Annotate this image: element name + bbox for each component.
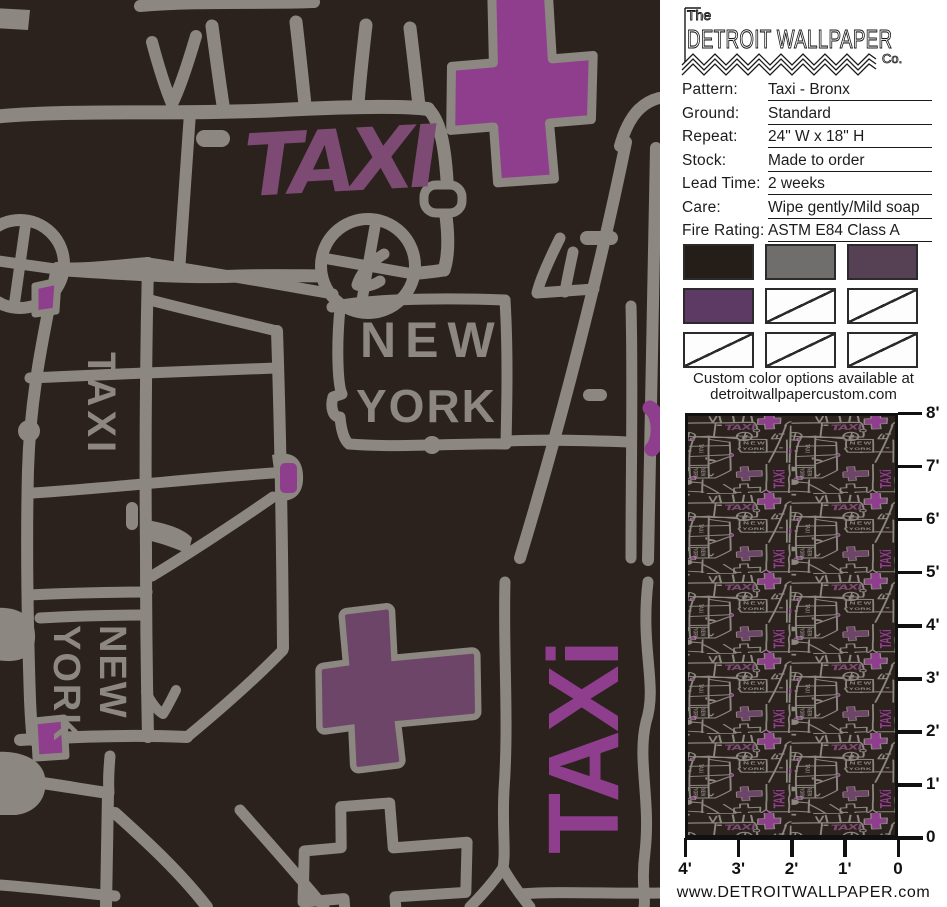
spec-row-fire-rating: Fire Rating: ASTM E84 Class A xyxy=(682,222,932,246)
wallpaper-pattern-preview: TAXI xyxy=(0,0,660,907)
ruler-label: 4' xyxy=(926,615,940,635)
vertical-ruler: 8' 7' 6' 5' 4' 3' 2' 1' 0 xyxy=(898,413,947,838)
spec-value: Standard xyxy=(768,105,932,125)
spec-label: Pattern: xyxy=(682,81,768,99)
ruler-label: 0 xyxy=(893,859,902,879)
website-url[interactable]: www.DETROITWALLPAPER.com xyxy=(660,884,947,902)
color-swatch-empty[interactable] xyxy=(683,332,754,368)
spec-label: Lead Time: xyxy=(682,175,768,193)
ruler-tick xyxy=(684,838,688,857)
logo-zigzag-ribbon xyxy=(682,54,876,75)
ruler-label: 1' xyxy=(926,774,940,794)
color-swatch[interactable] xyxy=(683,244,754,280)
van-purple-flag xyxy=(35,281,58,314)
spec-label: Ground: xyxy=(682,105,768,123)
color-swatch-empty[interactable] xyxy=(765,332,836,368)
van-sign-york: YORK xyxy=(45,625,87,743)
ruler-label: 2' xyxy=(926,721,940,741)
ruler-tick xyxy=(898,677,922,681)
ruler-tick xyxy=(790,838,794,857)
spec-list: Pattern: Taxi - Bronx Ground: Standard R… xyxy=(682,81,932,246)
ruler-tick xyxy=(737,838,741,857)
van-taxi-lettering: TAXI xyxy=(79,352,123,456)
color-swatch-empty[interactable] xyxy=(847,332,918,368)
street-taxi-lettering: TAXi xyxy=(528,642,640,854)
ruler-tick xyxy=(898,624,922,628)
spec-label: Fire Rating: xyxy=(682,222,768,240)
spec-row-ground: Ground: Standard xyxy=(682,105,932,129)
horizontal-ruler: 4' 3' 2' 1' 0 xyxy=(685,838,898,884)
logo-name: DETROIT WALLPAPER xyxy=(687,24,892,54)
custom-color-note: Custom color options available at detroi… xyxy=(660,371,947,403)
ruler-tick xyxy=(898,465,922,469)
spec-label: Care: xyxy=(682,199,768,217)
ruler-label: 5' xyxy=(926,562,940,582)
spec-value: 2 weeks xyxy=(768,175,932,195)
color-swatch[interactable] xyxy=(847,244,918,280)
taxi-lettering-on-car: TAXI xyxy=(242,107,442,217)
color-swatch-empty[interactable] xyxy=(847,288,918,324)
sign-text-york: YORK xyxy=(356,380,497,432)
color-swatch-empty[interactable] xyxy=(765,288,836,324)
detroit-wallpaper-logo: The DETROIT WALLPAPER Co. xyxy=(676,4,920,78)
van-purple-handle xyxy=(280,463,297,493)
ruler-tick xyxy=(843,838,847,857)
color-swatch[interactable] xyxy=(765,244,836,280)
spec-row-pattern: Pattern: Taxi - Bronx xyxy=(682,81,932,105)
ruler-tick xyxy=(898,783,922,787)
wallpaper-artwork: TAXI xyxy=(0,0,660,907)
ruler-label: 1' xyxy=(838,859,852,879)
spec-row-repeat: Repeat: 24" W x 18" H xyxy=(682,128,932,152)
spec-value: 24" W x 18" H xyxy=(768,128,932,148)
scale-preview xyxy=(685,413,898,838)
spec-row-stock: Stock: Made to order xyxy=(682,152,932,176)
colorway-swatches xyxy=(683,244,923,368)
spec-row-lead-time: Lead Time: 2 weeks xyxy=(682,175,932,199)
logo-the: The xyxy=(687,7,711,23)
purple-letter-fragment xyxy=(650,408,658,449)
spec-value: Made to order xyxy=(768,152,932,172)
ruler-label: 3' xyxy=(926,668,940,688)
color-swatch[interactable] xyxy=(683,288,754,324)
door-handle-mark xyxy=(196,130,230,147)
ruler-label: 7' xyxy=(926,456,940,476)
ruler-label: 6' xyxy=(926,509,940,529)
ruler-tick xyxy=(898,730,922,734)
spec-label: Repeat: xyxy=(682,128,768,146)
ruler-tick xyxy=(897,838,901,857)
product-spec-sheet: TAXI xyxy=(0,0,947,907)
spec-value: Wipe gently/Mild soap xyxy=(768,199,932,219)
ruler-label: 0 xyxy=(926,827,935,847)
ruler-tick xyxy=(898,571,922,575)
spec-value: ASTM E84 Class A xyxy=(768,222,932,242)
ruler-label: 2' xyxy=(785,859,799,879)
pattern-tile-art: TAXI xyxy=(0,0,660,907)
custom-note-url[interactable]: detroitwallpapercustom.com xyxy=(660,387,947,403)
custom-note-line1: Custom color options available at xyxy=(660,371,947,387)
logo-co: Co. xyxy=(882,51,902,66)
spec-row-care: Care: Wipe gently/Mild soap xyxy=(682,199,932,223)
ruler-label: 3' xyxy=(732,859,746,879)
spec-value: Taxi - Bronx xyxy=(768,81,932,101)
spec-label: Stock: xyxy=(682,152,768,170)
ruler-tick xyxy=(898,518,922,522)
van-sign-new: NEW xyxy=(91,625,133,720)
spec-panel: The DETROIT WALLPAPER Co. Pattern: Taxi … xyxy=(660,0,947,907)
scale-preview-tiles xyxy=(685,413,898,838)
ruler-label: 4' xyxy=(678,859,692,879)
ruler-label: 8' xyxy=(926,403,940,423)
sign-text-new: NEW xyxy=(360,312,504,368)
ruler-tick xyxy=(898,412,922,416)
